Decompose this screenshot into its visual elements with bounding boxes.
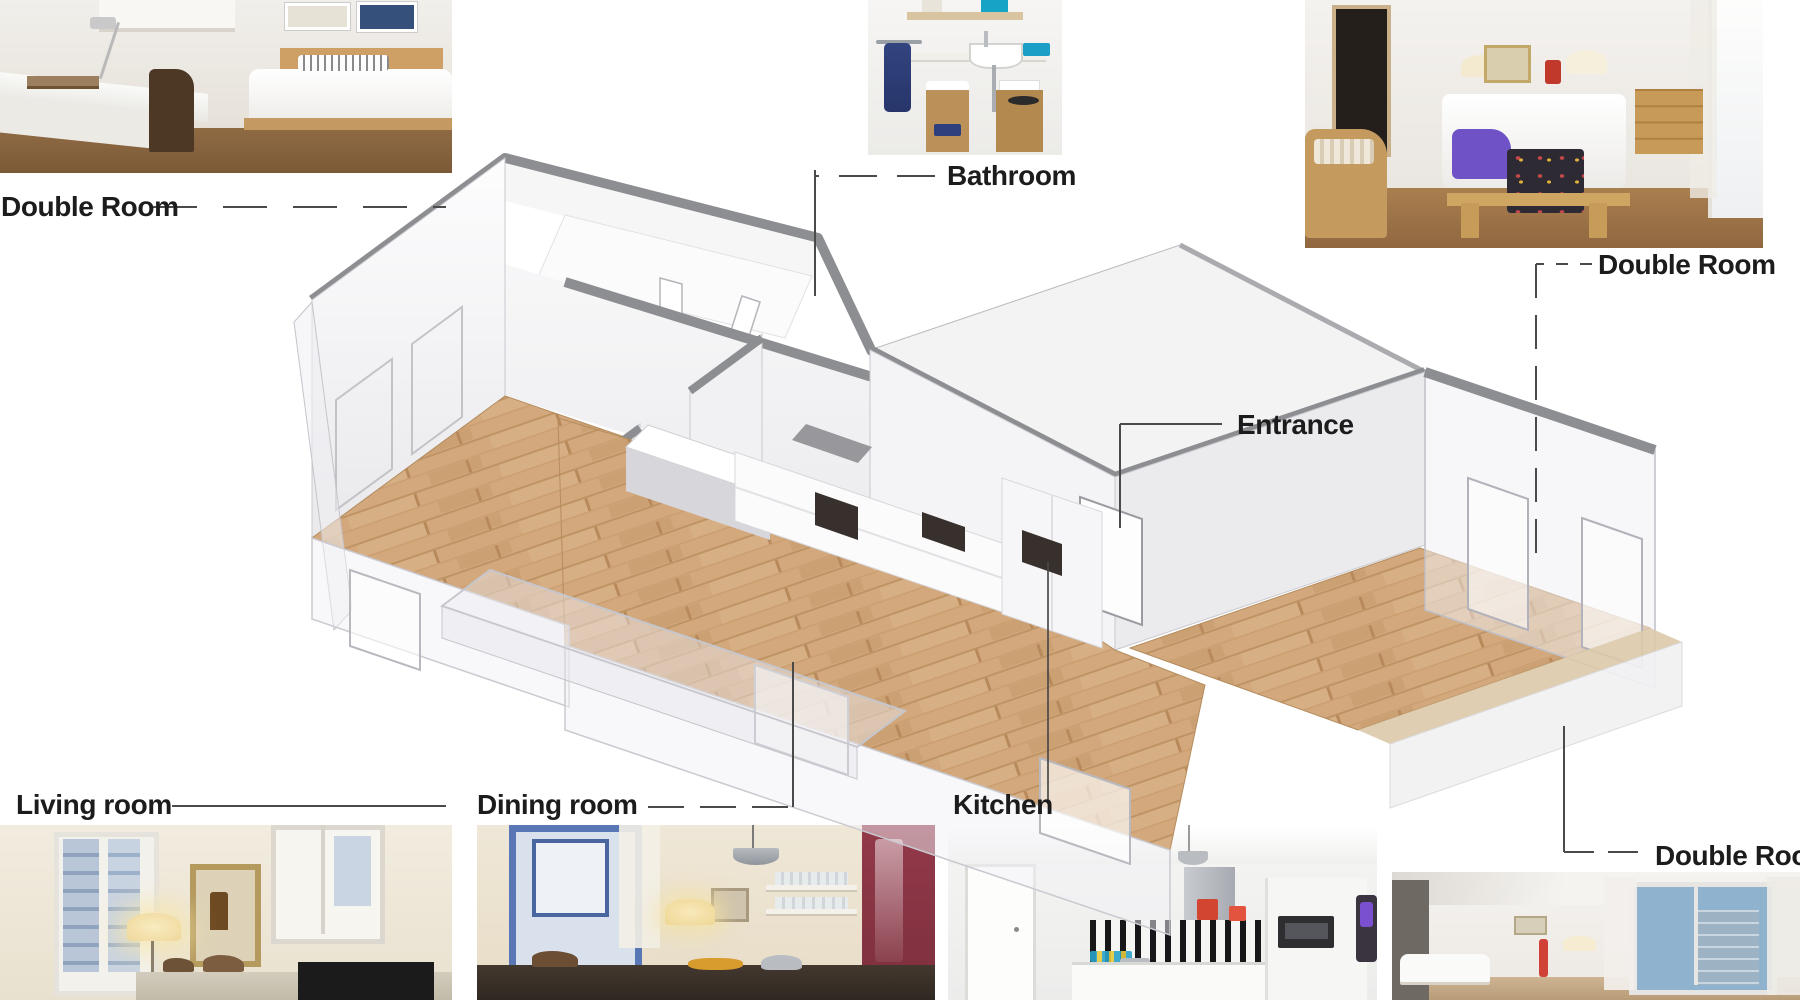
blue-cups: [1023, 43, 1050, 55]
fruit-bowl: [688, 958, 743, 970]
photo-double-room-bottom-right: [1392, 872, 1800, 1000]
counter: [1072, 962, 1287, 1000]
curtain: [619, 825, 660, 948]
label-double-room-top-right: Double Room: [1598, 251, 1776, 279]
label-double-room-top-left: Double Room: [1, 193, 179, 221]
purple-garment: [1360, 902, 1373, 927]
window-view: [334, 836, 370, 906]
door: [965, 864, 1035, 1000]
desk-lamp-head: [90, 17, 116, 29]
shutter-right: [108, 839, 140, 972]
pendant-cord: [752, 825, 754, 850]
wall-art: [1484, 45, 1531, 83]
cabinet-shine: [875, 839, 902, 962]
lamp-shade: [1563, 936, 1596, 951]
curtain: [1604, 877, 1637, 990]
glassware: [775, 897, 848, 909]
ceiling: [948, 825, 1377, 864]
wicker-cushion: [1314, 139, 1374, 164]
blue-towel: [884, 43, 911, 111]
blue-window-pane: [532, 839, 609, 917]
elephant-figurine: [532, 951, 578, 967]
photo-kitchen: [948, 825, 1377, 1000]
shelf-box: [922, 0, 941, 12]
purple-bag: [1452, 129, 1512, 179]
bench-leg: [1589, 203, 1607, 238]
faucet: [984, 31, 988, 47]
label-entrance: Entrance: [1237, 411, 1354, 439]
elephant-figurine: [163, 958, 195, 972]
wood-stool: [926, 90, 969, 152]
label-kitchen: Kitchen: [953, 791, 1053, 819]
window-bar: [321, 825, 325, 934]
photo-dining-room: [477, 825, 935, 1000]
building-view: [1694, 910, 1759, 984]
curtain: [1767, 877, 1800, 995]
lamp-shade: [665, 899, 715, 925]
tv: [298, 962, 434, 1000]
shelf-box-blue: [981, 0, 1008, 12]
bench-leg: [1461, 203, 1479, 238]
floor-lamp-shade: [127, 913, 181, 941]
bed-corner: [1400, 954, 1490, 982]
photo-double-room-top-right: [1305, 0, 1763, 248]
pendant-lamp: [1178, 851, 1208, 865]
label-double-room-bottom-right: Double Room: [1655, 842, 1800, 870]
photo-double-room-top-left: [0, 0, 452, 173]
red-canister: [1197, 899, 1218, 920]
photo-living-room: [0, 825, 452, 1000]
oven-glass: [1285, 923, 1328, 939]
red-canister: [1229, 906, 1246, 922]
dining-table: [477, 965, 935, 1000]
small-picture: [711, 888, 749, 922]
pendant-cord: [1188, 825, 1190, 853]
glassware: [775, 872, 848, 884]
bed-frame: [244, 118, 452, 130]
small-picture: [1514, 916, 1547, 935]
label-bathroom: Bathroom: [947, 162, 1076, 190]
magazines: [27, 76, 99, 86]
wall-art: [357, 2, 417, 32]
leader-lines: [153, 170, 1650, 852]
red-extinguisher: [1545, 60, 1561, 85]
navy-towel: [934, 124, 961, 136]
label-living-room: Living room: [16, 791, 172, 819]
shutter-left: [63, 839, 99, 972]
wall-shelf: [766, 885, 858, 890]
chair: [149, 69, 194, 152]
ceiling-slope: [1392, 872, 1637, 905]
red-floor-lamp: [1539, 939, 1548, 977]
shelf: [907, 12, 1023, 20]
photo-bathroom: [868, 0, 1062, 155]
striped-pillow: [298, 55, 388, 71]
picture-bottle: [210, 892, 228, 931]
apartment-plan-figure: Double Room Bathroom Double Room Entranc…: [0, 0, 1800, 1000]
wall-shelf: [766, 909, 858, 914]
dresser: [1635, 89, 1704, 153]
window-bar: [1694, 882, 1698, 984]
wall-art: [285, 3, 350, 30]
table-lamp: [1566, 50, 1607, 75]
label-dining-room: Dining room: [477, 791, 637, 819]
window-blind: [99, 0, 235, 32]
teapot: [761, 955, 802, 971]
